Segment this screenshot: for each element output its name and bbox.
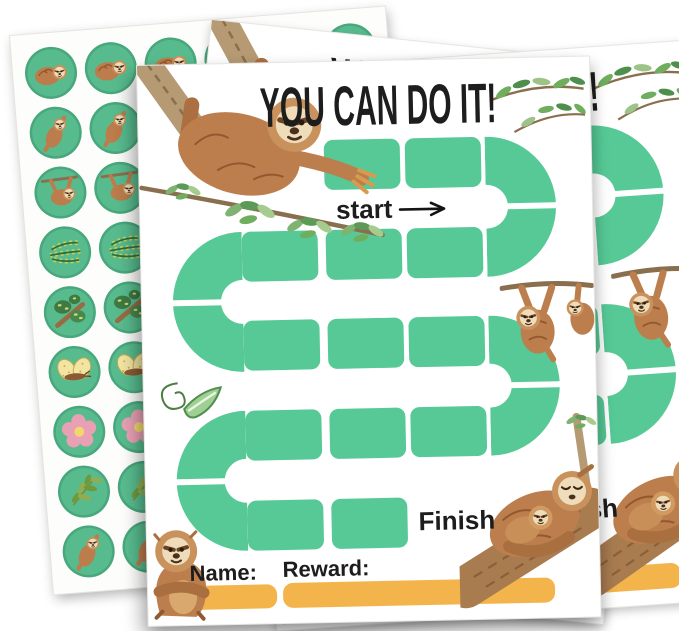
hanging-sloths-illustration (610, 260, 679, 354)
sticker (42, 284, 98, 340)
board-space (331, 497, 408, 549)
board-space (327, 317, 404, 369)
sloth-curled-icon (28, 50, 73, 95)
reward-chart-card-front: YOU CAN DO IT! start Finish Name: Reward… (137, 57, 601, 626)
board-space (243, 319, 320, 371)
board-turn (168, 232, 245, 374)
board-turn (485, 135, 562, 277)
flower-icon (57, 409, 102, 454)
fern-icon (43, 230, 88, 275)
sloth-hanging-icon (38, 170, 83, 215)
board-space (247, 499, 324, 551)
reward-label: Reward: (282, 555, 369, 583)
sticker (37, 224, 93, 280)
board-space (245, 409, 322, 461)
sticker (23, 45, 79, 101)
board-turn-icon (168, 232, 245, 374)
board-turn-icon (485, 135, 562, 277)
olive-leaves-illustration (587, 43, 679, 128)
board-space (405, 137, 482, 189)
sticker (61, 523, 117, 579)
board-turn (589, 121, 673, 266)
start-arrow-icon (398, 199, 450, 218)
board-space (408, 316, 485, 368)
board-space (329, 407, 406, 459)
hanging-sloths-illustration (500, 276, 596, 366)
card-title: YOU CAN DO IT! (259, 70, 497, 140)
board-space (406, 227, 483, 279)
sticker (32, 165, 88, 221)
start-label: start (336, 192, 451, 225)
sticker (88, 100, 144, 156)
name-label: Name: (189, 560, 257, 587)
sloth-climbing-icon (66, 529, 111, 574)
sticker (51, 404, 107, 460)
sloth-climbing-icon (93, 105, 138, 150)
sticker (47, 344, 103, 400)
leaf-sprig-icon (61, 469, 106, 514)
board-turn-icon (589, 121, 673, 266)
sloth-hanging-icon (98, 165, 143, 210)
olive-leaves-illustration (487, 59, 587, 139)
leaf-swirl-illustration (147, 374, 223, 432)
sticker (28, 105, 84, 161)
sticker (56, 464, 112, 520)
sloth-curled-icon (88, 46, 133, 91)
butterfly-icon (52, 349, 97, 394)
finish-label: Finish (418, 505, 495, 538)
sloth-climbing-icon (33, 110, 78, 155)
sticker (83, 40, 139, 96)
tree-icon (47, 290, 92, 335)
